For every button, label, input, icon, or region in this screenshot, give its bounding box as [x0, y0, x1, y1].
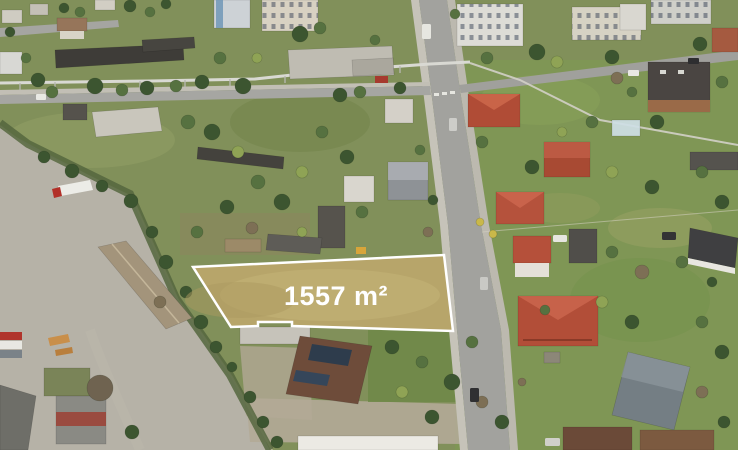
plot-highlight: 1557 m² — [185, 255, 453, 331]
car — [480, 277, 488, 290]
brick-mansion — [648, 62, 710, 112]
rusty-roof-building — [56, 396, 106, 444]
car — [628, 70, 639, 76]
flat-roof-house — [569, 229, 597, 263]
house — [57, 18, 87, 39]
car — [553, 235, 567, 242]
house-red-roof — [468, 94, 520, 127]
house-gray-gable — [388, 162, 428, 200]
car — [545, 438, 560, 446]
car — [449, 118, 457, 131]
house — [95, 0, 115, 10]
house-brown-roof — [563, 427, 632, 450]
house-red-roof — [496, 192, 544, 224]
plot-area-label: 1557 m² — [284, 281, 388, 311]
house-red-roof-large — [518, 296, 598, 346]
shed — [225, 239, 261, 252]
house-white — [344, 176, 374, 202]
outbuilding — [690, 152, 738, 170]
apartment-block — [620, 4, 646, 30]
warehouse-shed — [352, 58, 394, 76]
house-white — [385, 99, 413, 123]
house — [2, 10, 22, 23]
flat-roof-garage — [318, 206, 345, 248]
house-brown-roof — [640, 430, 714, 450]
red-truck — [375, 76, 388, 83]
house-solar-roof — [286, 336, 372, 404]
bus — [422, 24, 431, 39]
workshop — [63, 104, 87, 120]
car — [662, 232, 676, 240]
house — [30, 4, 48, 15]
house-red-roof — [712, 28, 738, 52]
moss-roof-building — [44, 368, 90, 396]
excavator — [356, 247, 366, 254]
car — [688, 58, 699, 64]
car — [470, 388, 479, 402]
office-building — [0, 52, 22, 74]
aerial-photo: 1557 m² — [0, 0, 738, 450]
two-story-house — [513, 236, 551, 277]
hall-white-roof — [298, 436, 438, 450]
containers — [0, 332, 22, 358]
greenhouse — [612, 120, 640, 136]
garden-shed — [544, 352, 560, 363]
house-red-roof — [544, 142, 590, 177]
car — [36, 94, 46, 100]
aerial-scene: 1557 m² — [0, 0, 738, 450]
